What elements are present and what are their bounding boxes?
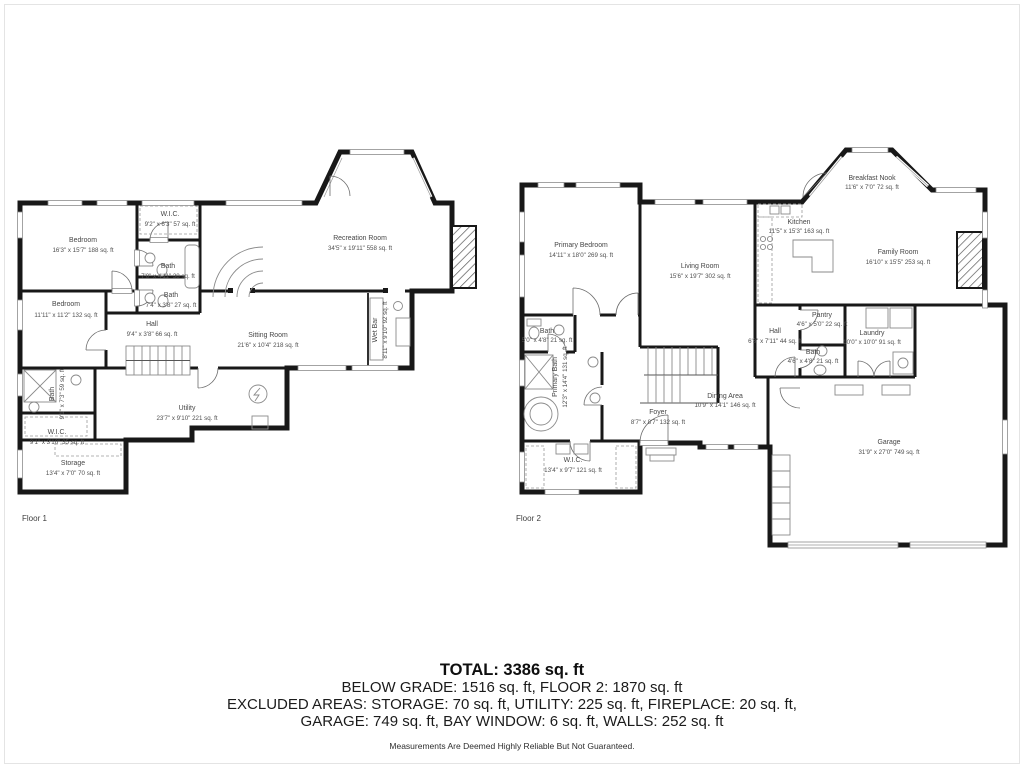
room-dims: 16'3" x 15'7" 188 sq. ft — [52, 247, 113, 254]
room-label: Storage — [61, 460, 85, 467]
room-dims: 10'0" x 10'0" 91 sq. ft — [843, 339, 901, 346]
room-dims: 7'4" x 3'8" 27 sq. ft — [146, 302, 197, 309]
room-dims: 12'3" x 14'4" 131 sq. ft — [562, 346, 569, 407]
room-dims: 34'5" x 19'11" 558 sq. ft — [328, 245, 392, 252]
room-label: Living Room — [681, 263, 720, 270]
floor1-title: Floor 1 — [22, 514, 47, 523]
room-dims: 13'4" x 9'7" 121 sq. ft — [544, 467, 602, 474]
floor1-plan: Bedroom 16'3" x 15'7" 188 sq. ft W.I.C. … — [18, 150, 477, 524]
room-label: Hall — [769, 328, 781, 335]
excluded-areas-text-2: GARAGE: 749 sq. ft, BAY WINDOW: 6 sq. ft… — [0, 713, 1024, 730]
floor-areas-text: BELOW GRADE: 1516 sq. ft, FLOOR 2: 1870 … — [0, 679, 1024, 696]
room-label: Bath — [164, 292, 178, 299]
room-dims: 15'6" x 19'7" 302 sq. ft — [669, 273, 730, 280]
room-dims: 10'9" x 14'1" 146 sq. ft — [694, 402, 755, 409]
summary-block: TOTAL: 3386 sq. ft BELOW GRADE: 1516 sq.… — [0, 662, 1024, 752]
room-label: Kitchen — [788, 219, 811, 226]
room-label: W.I.C. — [564, 457, 583, 464]
room-label: Recreation Room — [333, 235, 387, 242]
floor2-exterior-walls — [522, 150, 1005, 545]
room-label: Primary Bath — [552, 357, 559, 397]
room-label: Bedroom — [69, 237, 97, 244]
room-label: Wet Bar — [372, 317, 379, 342]
room-dims: 5'0" x 4'8" 21 sq. ft — [522, 337, 573, 344]
room-dims: 11'11" x 11'2" 132 sq. ft — [34, 312, 97, 319]
bathtub-icon — [185, 245, 199, 288]
excluded-areas-text: EXCLUDED AREAS: STORAGE: 70 sq. ft, UTIL… — [0, 696, 1024, 713]
total-area-text: TOTAL: 3386 sq. ft — [0, 662, 1024, 679]
room-label: Laundry — [860, 330, 885, 337]
sink-icon — [145, 253, 155, 263]
room-dims: 8'11" x 9'10" 92 sq. ft — [382, 301, 389, 358]
porch-steps-icon — [646, 448, 676, 461]
room-dims: 9'1" x 7'3" 59 sq. ft — [59, 368, 66, 419]
room-dims: 9'2" x 6'3" 57 sq. ft — [145, 221, 196, 228]
room-label: Utility — [179, 405, 196, 412]
room-label: Bath — [161, 263, 175, 270]
room-label: W.I.C. — [161, 211, 180, 218]
room-label: Pantry — [812, 312, 832, 319]
room-dims: 8'7" x 8'7" 132 sq. ft — [631, 419, 686, 426]
room-label: Sitting Room — [248, 332, 288, 339]
room-dims: 11'5" x 15'3" 163 sq. ft — [769, 228, 830, 235]
sink-icon — [554, 325, 564, 335]
room-dims: 7'0" x 4'11" 38 sq. ft — [141, 273, 195, 280]
room-dims: 21'6" x 10'4" 218 sq. ft — [237, 342, 298, 349]
floorplan-page: Bedroom 16'3" x 15'7" 188 sq. ft W.I.C. … — [0, 0, 1024, 768]
room-dims: 13'4" x 7'0" 70 sq. ft — [46, 470, 101, 477]
railing-post — [228, 288, 233, 293]
fireplace-icon — [452, 226, 476, 288]
room-dims: 11'6" x 7'0" 72 sq. ft — [845, 184, 899, 191]
floorplan-svg: Bedroom 16'3" x 15'7" 188 sq. ft W.I.C. … — [0, 0, 1024, 768]
room-label: Family Room — [878, 249, 919, 256]
room-dims: 31'9" x 27'0" 749 sq. ft — [858, 449, 919, 456]
room-dims: 14'11" x 18'0" 269 sq. ft — [549, 252, 613, 259]
room-label: Bath — [49, 387, 56, 401]
garage-door — [788, 542, 986, 548]
floor2-plan: Primary Bedroom 14'11" x 18'0" 269 sq. f… — [516, 148, 1008, 549]
shower-icon — [525, 355, 553, 389]
room-label: Hall — [146, 321, 158, 328]
room-label: Primary Bedroom — [554, 242, 608, 249]
toilet-icon — [29, 402, 39, 412]
room-dims: 4'6" x 5'0" 22 sq. ft — [797, 321, 848, 328]
room-dims: 9'4" x 3'8" 66 sq. ft — [127, 331, 178, 338]
corner-tub-icon — [524, 397, 558, 431]
room-label: Dining Area — [707, 393, 743, 400]
room-label: Bedroom — [52, 301, 80, 308]
fireplace-icon — [957, 232, 983, 288]
room-label: Breakfast Nook — [848, 175, 896, 182]
toilet-icon — [814, 365, 826, 375]
sink-icon — [71, 375, 81, 385]
room-label: Garage — [878, 439, 901, 446]
railing-post — [383, 288, 388, 293]
room-dims: 9'1" x 3'10" 35 sq. ft — [30, 439, 85, 446]
room-dims: 6'3" x 7'11" 44 sq. ft — [748, 338, 802, 345]
room-label: Bath — [540, 328, 554, 335]
room-dims: 4'6" x 4'8" 21 sq. ft — [788, 358, 839, 365]
floor1-stairs — [126, 346, 190, 375]
room-dims: 16'10" x 15'5" 253 sq. ft — [866, 259, 931, 266]
room-label: Bath — [806, 349, 820, 356]
room-dims: 23'7" x 9'10" 221 sq. ft — [156, 415, 217, 422]
sink-icon — [590, 393, 600, 403]
room-label: Foyer — [649, 409, 667, 416]
room-label: W.I.C. — [48, 429, 67, 436]
sink-icon — [588, 357, 598, 367]
floor2-title: Floor 2 — [516, 514, 541, 523]
disclaimer-text: Measurements Are Deemed Highly Reliable … — [0, 740, 1024, 752]
garage-steps-icon — [772, 455, 790, 535]
